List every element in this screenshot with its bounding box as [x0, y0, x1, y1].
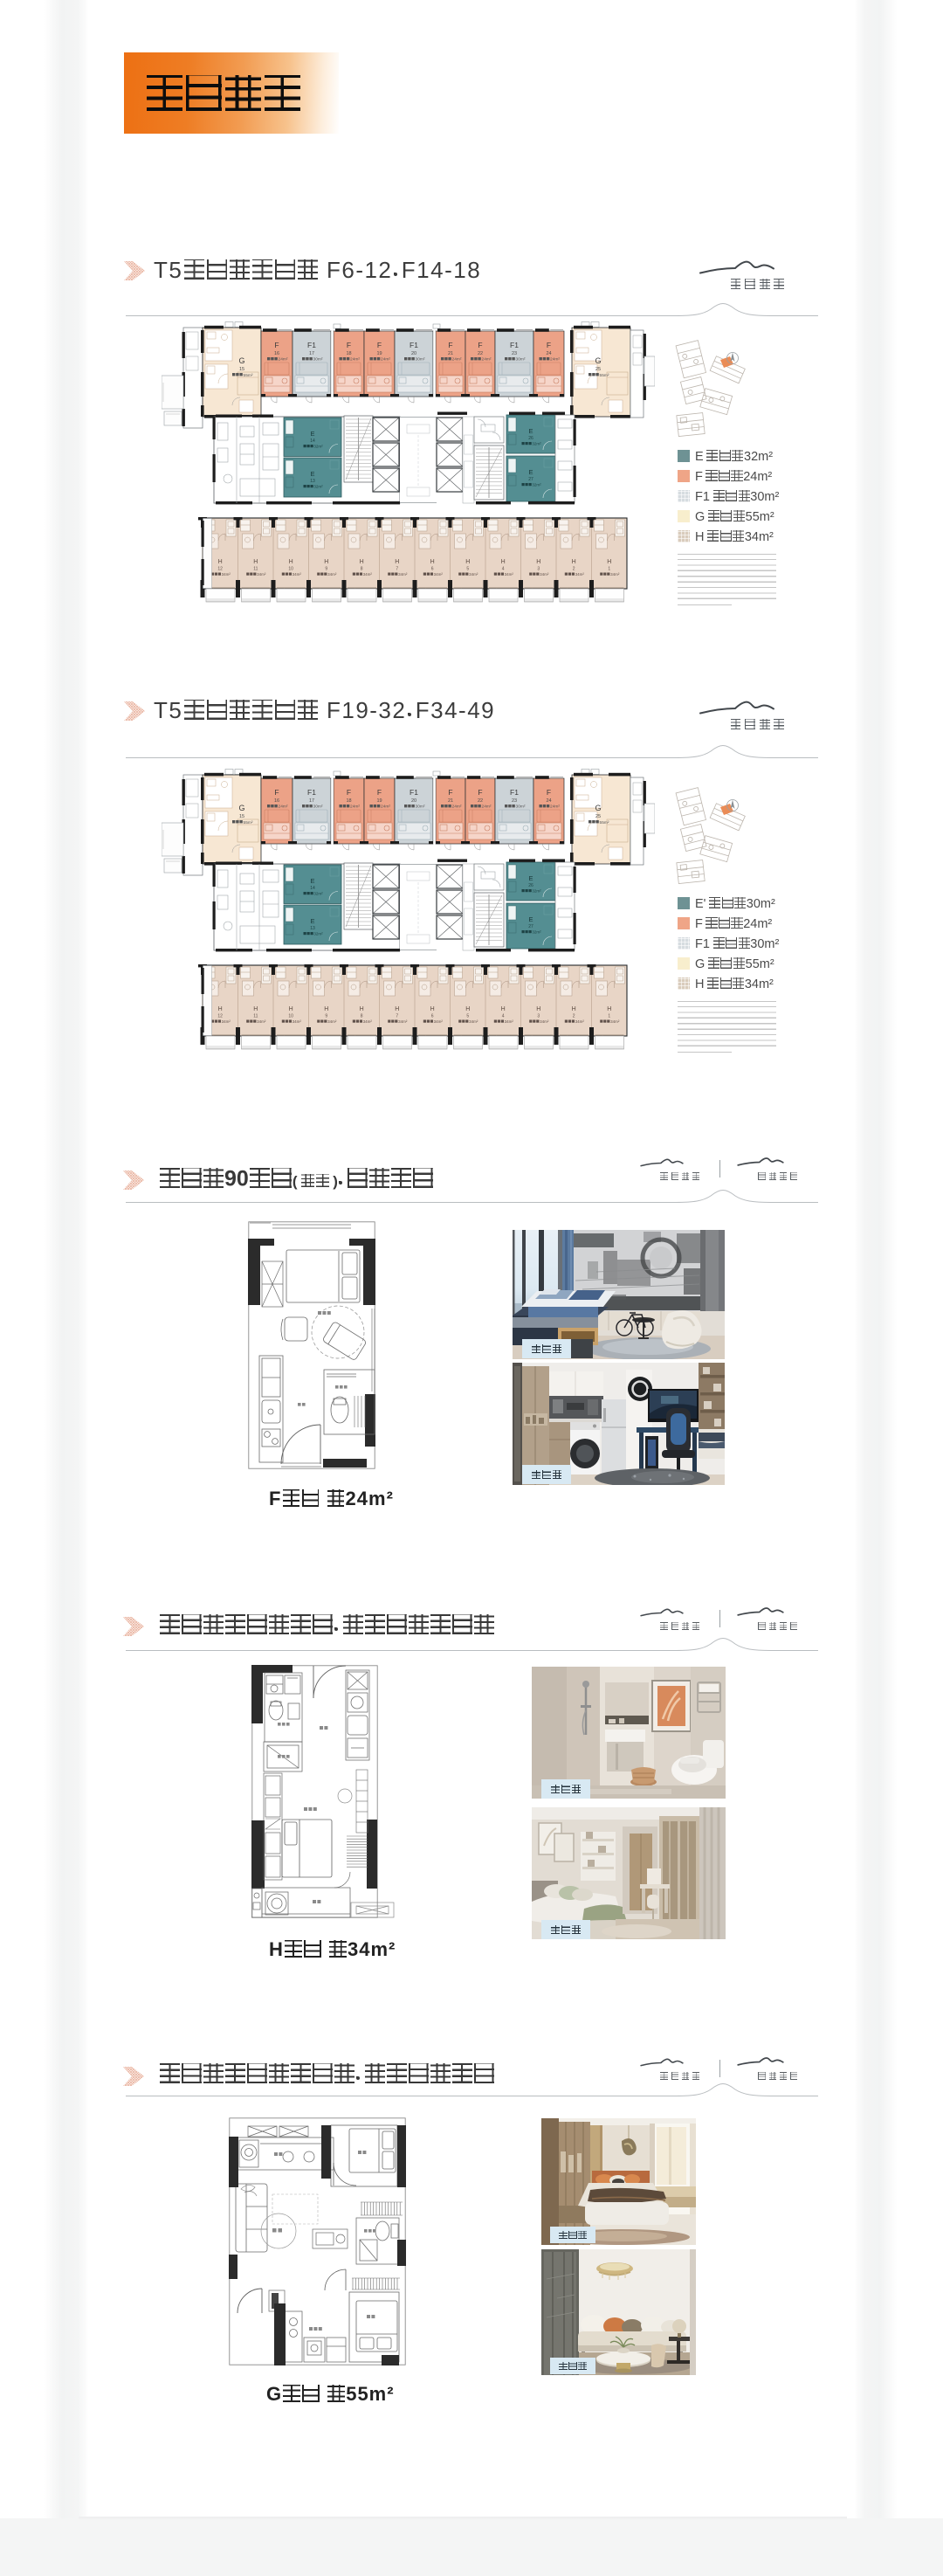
svg-text:25: 25	[595, 367, 601, 372]
svg-text:19: 19	[376, 351, 382, 356]
svg-text:55m²: 55m²	[244, 373, 253, 378]
svg-text:24: 24	[546, 351, 551, 356]
svg-text:H: H	[501, 559, 506, 565]
svg-text:6: 6	[431, 567, 434, 572]
svg-text:F: F	[547, 341, 551, 349]
svg-text:34m²: 34m²	[610, 572, 620, 577]
svg-text:30m²: 30m²	[416, 357, 425, 363]
svg-text:E: E	[528, 427, 533, 435]
svg-text:22: 22	[478, 351, 483, 356]
svg-text:18: 18	[346, 351, 351, 356]
svg-text:4: 4	[502, 567, 505, 572]
svg-text:34m²: 34m²	[363, 572, 373, 577]
svg-text:20: 20	[411, 351, 416, 356]
svg-text:H: H	[324, 559, 328, 565]
svg-text:H: H	[253, 559, 258, 565]
svg-text:16: 16	[274, 351, 279, 356]
svg-text:13: 13	[310, 479, 315, 484]
svg-text:32m²: 32m²	[532, 482, 541, 487]
svg-text:E: E	[528, 468, 533, 476]
svg-text:24m²: 24m²	[381, 357, 390, 363]
svg-text:E: E	[310, 430, 314, 438]
svg-text:24m²: 24m²	[452, 357, 462, 363]
svg-text:F: F	[478, 341, 482, 349]
svg-text:H: H	[430, 559, 435, 565]
svg-text:23: 23	[512, 351, 517, 356]
svg-text:24m²: 24m²	[482, 357, 492, 363]
svg-text:14: 14	[310, 439, 315, 444]
svg-text:34m²: 34m²	[222, 572, 231, 577]
svg-text:H: H	[395, 559, 399, 565]
svg-text:32m²: 32m²	[532, 441, 541, 445]
svg-text:12: 12	[217, 567, 223, 572]
svg-text:F1: F1	[510, 341, 519, 349]
svg-text:34m²: 34m²	[327, 572, 337, 577]
svg-text:32m²: 32m²	[313, 484, 323, 488]
svg-text:24m²: 24m²	[550, 357, 560, 363]
svg-text:15: 15	[239, 367, 244, 372]
svg-text:17: 17	[309, 351, 314, 356]
svg-text:1: 1	[608, 567, 610, 572]
svg-text:7: 7	[396, 567, 398, 572]
svg-text:H: H	[536, 559, 540, 565]
svg-text:G: G	[238, 356, 244, 365]
svg-text:G: G	[595, 356, 601, 365]
svg-text:8: 8	[361, 567, 363, 572]
svg-text:55m²: 55m²	[600, 373, 609, 378]
svg-text:24m²: 24m²	[350, 357, 360, 363]
svg-text:5: 5	[466, 567, 469, 572]
svg-text:F: F	[377, 341, 382, 349]
svg-text:34m²: 34m²	[469, 572, 478, 577]
svg-text:30m²: 30m²	[313, 357, 323, 363]
svg-text:11: 11	[253, 567, 258, 572]
svg-text:H: H	[572, 559, 576, 565]
svg-text:34m²: 34m²	[398, 572, 408, 577]
svg-text:H: H	[218, 559, 223, 565]
svg-text:F1: F1	[307, 341, 316, 349]
svg-text:34m²: 34m²	[575, 572, 585, 577]
svg-text:24m²: 24m²	[279, 357, 288, 363]
svg-text:9: 9	[325, 567, 327, 572]
svg-text:34m²: 34m²	[293, 572, 302, 577]
svg-text:2: 2	[573, 567, 575, 572]
svg-text:10: 10	[288, 567, 293, 572]
svg-text:34m²: 34m²	[540, 572, 549, 577]
svg-text:3: 3	[537, 567, 540, 572]
svg-text:27: 27	[528, 477, 533, 482]
svg-text:30m²: 30m²	[516, 357, 526, 363]
svg-text:F: F	[347, 341, 351, 349]
svg-text:F: F	[448, 341, 452, 349]
svg-text:21: 21	[448, 351, 453, 356]
svg-text:32m²: 32m²	[313, 444, 323, 448]
svg-text:H: H	[465, 559, 470, 565]
svg-text:34m²: 34m²	[505, 572, 514, 577]
svg-text:F: F	[274, 341, 279, 349]
svg-text:H: H	[360, 559, 364, 565]
svg-text:H: H	[289, 559, 293, 565]
svg-text:F1: F1	[410, 341, 418, 349]
svg-text:34m²: 34m²	[434, 572, 444, 577]
svg-text:H: H	[607, 559, 611, 565]
svg-text:34m²: 34m²	[257, 572, 266, 577]
svg-text:E: E	[310, 470, 314, 478]
svg-text:26: 26	[528, 436, 533, 441]
